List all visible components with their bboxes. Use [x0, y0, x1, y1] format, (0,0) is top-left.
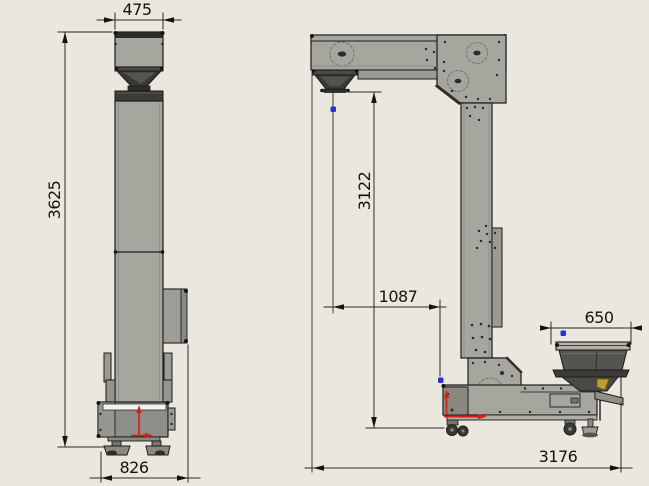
- technical-drawing-canvas: 3625 475: [0, 0, 649, 486]
- dimension-side-discharge-height: 3122: [355, 172, 374, 211]
- discharge-point-marker: [331, 107, 337, 113]
- elevator-column-front: [114, 101, 165, 403]
- infeed-chute-front: [163, 289, 188, 343]
- dimension-side-overall-length: 3176: [539, 447, 578, 466]
- leveling-feet-front: [104, 441, 170, 456]
- corner-sprocket-icon: [473, 51, 480, 56]
- elevator-drawing: 3625 475: [0, 0, 649, 486]
- corner-elbow-block: [437, 35, 506, 103]
- dim-side-discharge-offset: 1087: [324, 287, 446, 376]
- head-section-front: [114, 31, 165, 67]
- hopper-reference-marker: [561, 331, 567, 337]
- head-sprocket-icon: [338, 51, 346, 56]
- side-view: 3122 1087 650 3176: [305, 34, 642, 472]
- front-view: 3625 475: [45, 0, 200, 482]
- dimension-front-top-width: 475: [122, 0, 151, 19]
- dimension-front-base-width: 826: [119, 458, 148, 477]
- elevator-column-side: [461, 103, 502, 358]
- discharge-hopper-side: [312, 69, 359, 92]
- dimension-side-discharge-offset: 1087: [379, 287, 418, 306]
- under-arm-rail: [358, 70, 437, 79]
- dim-front-top-width: 475: [97, 0, 181, 29]
- casters-side: [447, 419, 599, 437]
- base-section-front: [97, 401, 176, 441]
- dimension-side-infeed-hopper-width: 650: [584, 308, 613, 327]
- infeed-chute-tray: [595, 391, 623, 405]
- dim-side-infeed-hopper-width: 650: [540, 308, 642, 344]
- discharge-hopper-front: [115, 67, 164, 101]
- dimension-front-overall-height: 3625: [45, 181, 64, 220]
- dim-side-discharge-height: 3122: [348, 92, 444, 428]
- infeed-point-marker: [438, 378, 444, 384]
- dim-front-overall-height: 3625: [45, 32, 112, 447]
